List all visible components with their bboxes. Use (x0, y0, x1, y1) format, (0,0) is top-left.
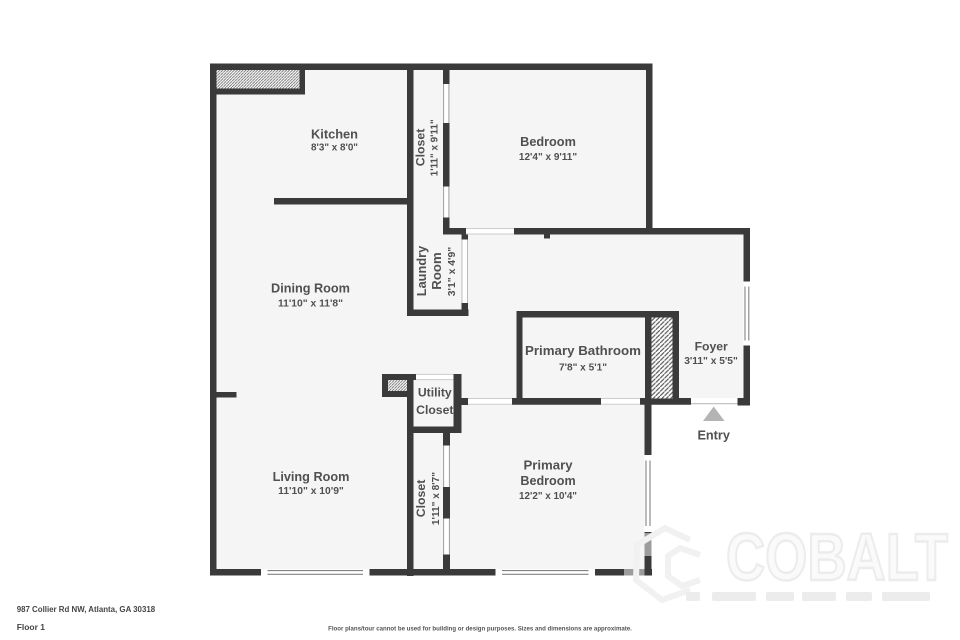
svg-text:12'2" x 10'4": 12'2" x 10'4" (519, 491, 577, 502)
svg-text:3'11" x 5'5": 3'11" x 5'5" (684, 356, 738, 367)
svg-text:987 Collier Rd NW, Atlanta, GA: 987 Collier Rd NW, Atlanta, GA 30318 (17, 605, 156, 614)
svg-text:1'11" x 9'11": 1'11" x 9'11" (430, 119, 441, 176)
svg-text:Floor plans/tour cannot be use: Floor plans/tour cannot be used for buil… (328, 626, 632, 633)
svg-text:Closet: Closet (414, 129, 428, 167)
svg-text:Bedroom: Bedroom (520, 474, 575, 488)
svg-text:11'10" x 10'9": 11'10" x 10'9" (278, 486, 344, 497)
svg-text:11'10" x 11'8": 11'10" x 11'8" (278, 299, 343, 310)
svg-text:Primary: Primary (523, 457, 573, 472)
svg-text:Closet: Closet (416, 403, 453, 417)
svg-text:Utility: Utility (418, 386, 452, 400)
svg-text:1'11" x 8'7": 1'11" x 8'7" (431, 472, 442, 525)
svg-text:12'4" x 9'11": 12'4" x 9'11" (519, 152, 577, 163)
svg-text:Entry: Entry (697, 429, 729, 443)
svg-text:Floor 1: Floor 1 (17, 622, 46, 632)
svg-text:3'1" x 4'9": 3'1" x 4'9" (447, 247, 458, 297)
svg-text:Laundry: Laundry (414, 245, 429, 296)
svg-text:Dining Room: Dining Room (271, 282, 350, 296)
svg-text:7'8" x 5'1": 7'8" x 5'1" (559, 363, 607, 374)
svg-text:Bedroom: Bedroom (520, 135, 576, 149)
svg-text:Closet: Closet (414, 480, 428, 518)
svg-text:Primary Bathroom: Primary Bathroom (525, 343, 641, 358)
svg-text:Foyer: Foyer (695, 339, 728, 353)
svg-text:Kitchen: Kitchen (311, 126, 358, 141)
svg-text:COBALT: COBALT (726, 520, 948, 595)
svg-text:8'3" x 8'0": 8'3" x 8'0" (311, 143, 358, 154)
svg-text:Living Room: Living Room (273, 470, 350, 484)
svg-text:Room: Room (429, 252, 444, 289)
